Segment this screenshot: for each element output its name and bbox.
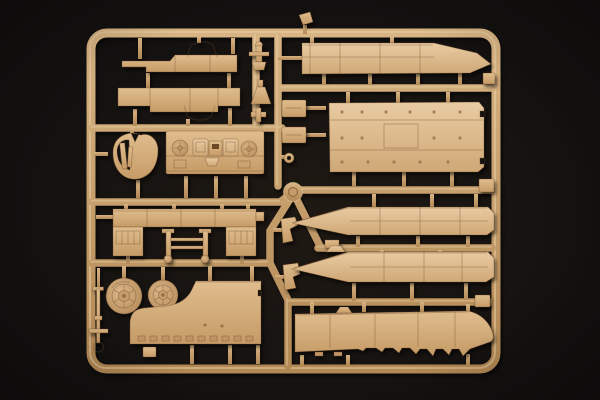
hull-side-toothed	[295, 307, 493, 356]
square-boss	[193, 139, 208, 156]
mount-block-lower	[282, 127, 306, 143]
side-tab	[256, 212, 264, 221]
runner-hub-boss	[289, 188, 298, 197]
top-lug	[336, 307, 352, 313]
rail-pad-mid-right	[479, 179, 494, 192]
lever-part	[127, 147, 132, 167]
axle-frame	[162, 229, 211, 263]
periscope-bracket-1	[281, 217, 298, 243]
rail-pad-low-right	[475, 295, 490, 307]
shackle-fitting	[249, 42, 269, 71]
roof-panel-large	[329, 102, 485, 172]
rail-pad-top-right	[483, 73, 495, 84]
heart-panel	[113, 133, 158, 179]
ring-eyelet	[284, 153, 294, 163]
photo-model-kit-sprue	[0, 0, 600, 400]
hull-side-upper	[292, 207, 494, 235]
mount-block-upper	[282, 100, 306, 117]
road-wheel-large	[106, 278, 142, 314]
injection-tab-top	[299, 12, 313, 25]
engine-deck	[166, 131, 264, 174]
square-boss	[223, 139, 238, 156]
sprue-illustration	[0, 0, 600, 400]
rail-tab-bottom-left	[143, 347, 156, 357]
hull-deck-tapered	[302, 43, 491, 74]
